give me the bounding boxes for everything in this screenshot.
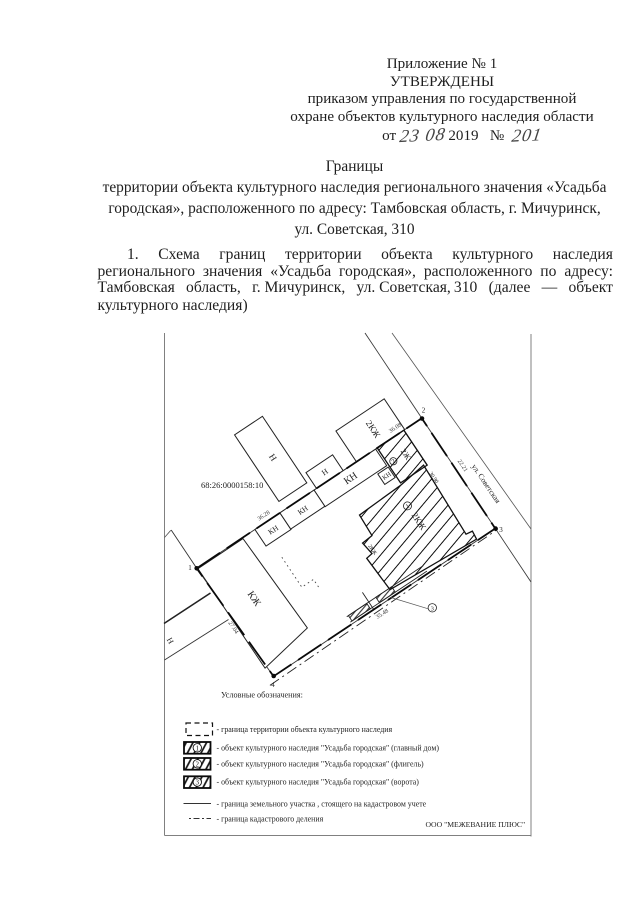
svg-text:1: 1 xyxy=(196,744,200,752)
svg-text:1: 1 xyxy=(188,564,192,572)
svg-text:- объект культурного наследия: - объект культурного наследия "Усадьба г… xyxy=(217,760,425,769)
svg-text:- граница земельного участка ,: - граница земельного участка , стоящего … xyxy=(217,800,427,809)
svg-text:35.48: 35.48 xyxy=(375,608,390,620)
svg-text:2: 2 xyxy=(196,760,200,768)
svg-text:3: 3 xyxy=(196,779,200,787)
svg-text:68:26:0000158:10: 68:26:0000158:10 xyxy=(201,480,263,490)
svg-text:2: 2 xyxy=(422,407,426,415)
svg-text:4: 4 xyxy=(271,681,275,689)
svg-text:- граница территории объекта к: - граница территории объекта культурного… xyxy=(217,725,393,734)
svg-text:- граница кадастрового деления: - граница кадастрового деления xyxy=(217,815,324,824)
svg-text:3: 3 xyxy=(499,526,503,534)
svg-text:- объект культурного наследия: - объект культурного наследия "Усадьба г… xyxy=(217,778,420,787)
svg-text:- объект культурного наследия: - объект культурного наследия "Усадьба г… xyxy=(217,744,440,753)
svg-text:Н: Н xyxy=(165,636,176,646)
svg-text:3: 3 xyxy=(431,605,434,612)
svg-text:ООО "МЕЖЕВАНИЕ ПЛЮС": ООО "МЕЖЕВАНИЕ ПЛЮС" xyxy=(426,820,526,829)
svg-text:Условные обозначения:: Условные обозначения: xyxy=(221,691,303,700)
